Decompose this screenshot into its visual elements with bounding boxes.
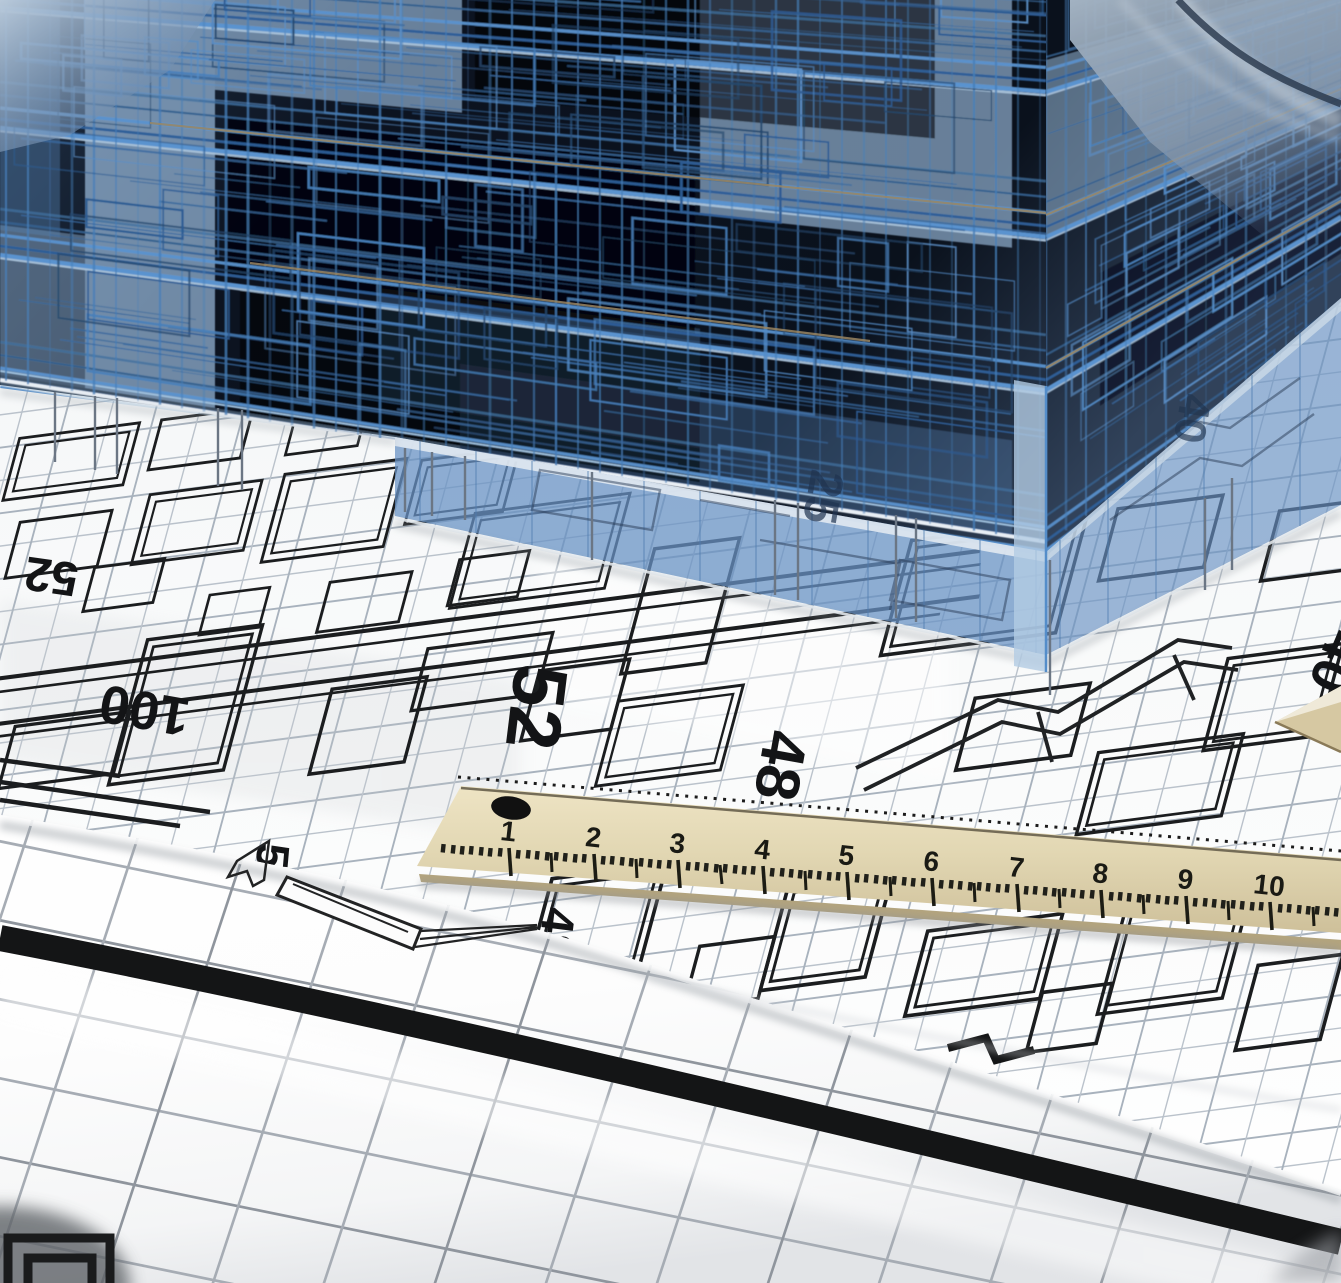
svg-text:52: 52: [489, 660, 584, 754]
svg-text:25: 25: [792, 466, 853, 528]
svg-text:10: 10: [1252, 868, 1286, 902]
svg-text:40: 40: [1164, 390, 1221, 447]
svg-text:52: 52: [21, 546, 81, 606]
svg-text:48: 48: [740, 726, 820, 806]
